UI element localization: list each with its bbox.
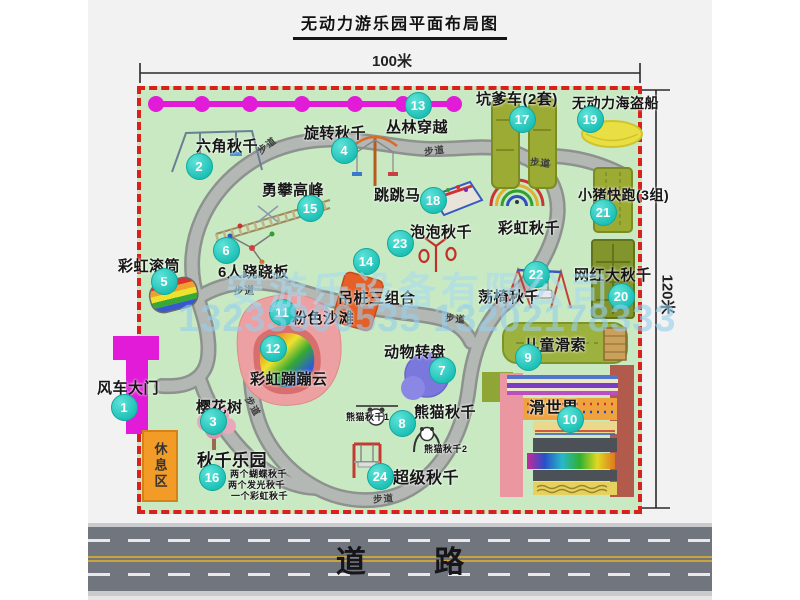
footpath-label-4: 步道 [234, 283, 255, 297]
attraction-marker-22: 22 [523, 261, 550, 288]
rest-area-label: 休息区 [151, 442, 170, 490]
attraction-marker-11: 11 [269, 299, 296, 326]
attraction-marker-1: 1 [111, 394, 138, 421]
attraction-marker-10: 10 [557, 406, 584, 433]
attraction-marker-4: 4 [331, 137, 358, 164]
attraction-label-24: 超级秋千 [393, 464, 459, 488]
attraction-marker-19: 19 [577, 106, 604, 133]
attraction-marker-16: 16 [199, 464, 226, 491]
attraction-label-18: 跳跳马 [374, 184, 421, 205]
attraction-marker-8: 8 [389, 410, 416, 437]
attraction-marker-24: 24 [367, 463, 394, 490]
swing-park-note-3: 一个彩虹秋千 [231, 489, 288, 502]
attraction-marker-15: 15 [297, 195, 324, 222]
attraction-label-21: 小猪快跑(3组) [578, 185, 669, 205]
screenshot-stage: 无动力游乐园平面布局图 100米 120米 [0, 0, 800, 600]
attraction-label-11: 粉色沙滩 [292, 307, 354, 328]
attraction-label-6: 6人跷跷板 [218, 261, 289, 282]
attraction-marker-7: 7 [429, 357, 456, 384]
panda-swing-1-label: 熊猫秋千1 [346, 410, 390, 423]
footpath-label-3: 步道 [529, 154, 551, 170]
attraction-marker-21: 21 [590, 199, 617, 226]
rest-area: 休息区 [142, 430, 178, 502]
attraction-marker-14: 14 [353, 248, 380, 275]
attraction-label-13: 丛林穿越 [386, 116, 448, 137]
attraction-label-23: 泡泡秋千 [410, 221, 472, 242]
attraction-label-22: 荡椅秋千 [478, 286, 540, 307]
attraction-label-20: 网红大秋千 [574, 264, 652, 285]
attraction-marker-3: 3 [200, 408, 227, 435]
attraction-marker-17: 17 [509, 106, 536, 133]
attraction-marker-5: 5 [151, 268, 178, 295]
attraction-label-2: 六角秋千 [196, 135, 258, 156]
road-label: 道 路 [88, 527, 712, 591]
footpath-label-5: 步道 [444, 310, 466, 326]
page-title: 无动力游乐园平面布局图 [293, 10, 507, 40]
attraction-marker-9: 9 [515, 344, 542, 371]
road: 道 路 [88, 523, 712, 596]
footpath-label-7: 步道 [373, 490, 395, 505]
attraction-label-8: 熊猫秋千 [414, 401, 476, 422]
attraction-marker-18: 18 [420, 187, 447, 214]
attraction-marker-13: 13 [405, 92, 432, 119]
attraction-marker-2: 2 [186, 153, 213, 180]
dimension-right-label: 120米 [658, 274, 679, 314]
panda-swing-2-label: 熊猫秋千2 [424, 442, 468, 455]
footpath-label-2: 步道 [423, 142, 446, 159]
attraction-label-14: 吊桩三组合 [338, 287, 416, 308]
attraction-marker-23: 23 [387, 230, 414, 257]
attraction-marker-20: 20 [608, 283, 635, 310]
rainbow-swing-label: 彩虹秋千 [498, 217, 560, 238]
dimension-top-label: 100米 [372, 50, 412, 71]
attraction-marker-6: 6 [213, 237, 240, 264]
attraction-label-12: 彩虹蹦蹦云 [250, 368, 328, 389]
attraction-marker-12: 12 [260, 335, 287, 362]
